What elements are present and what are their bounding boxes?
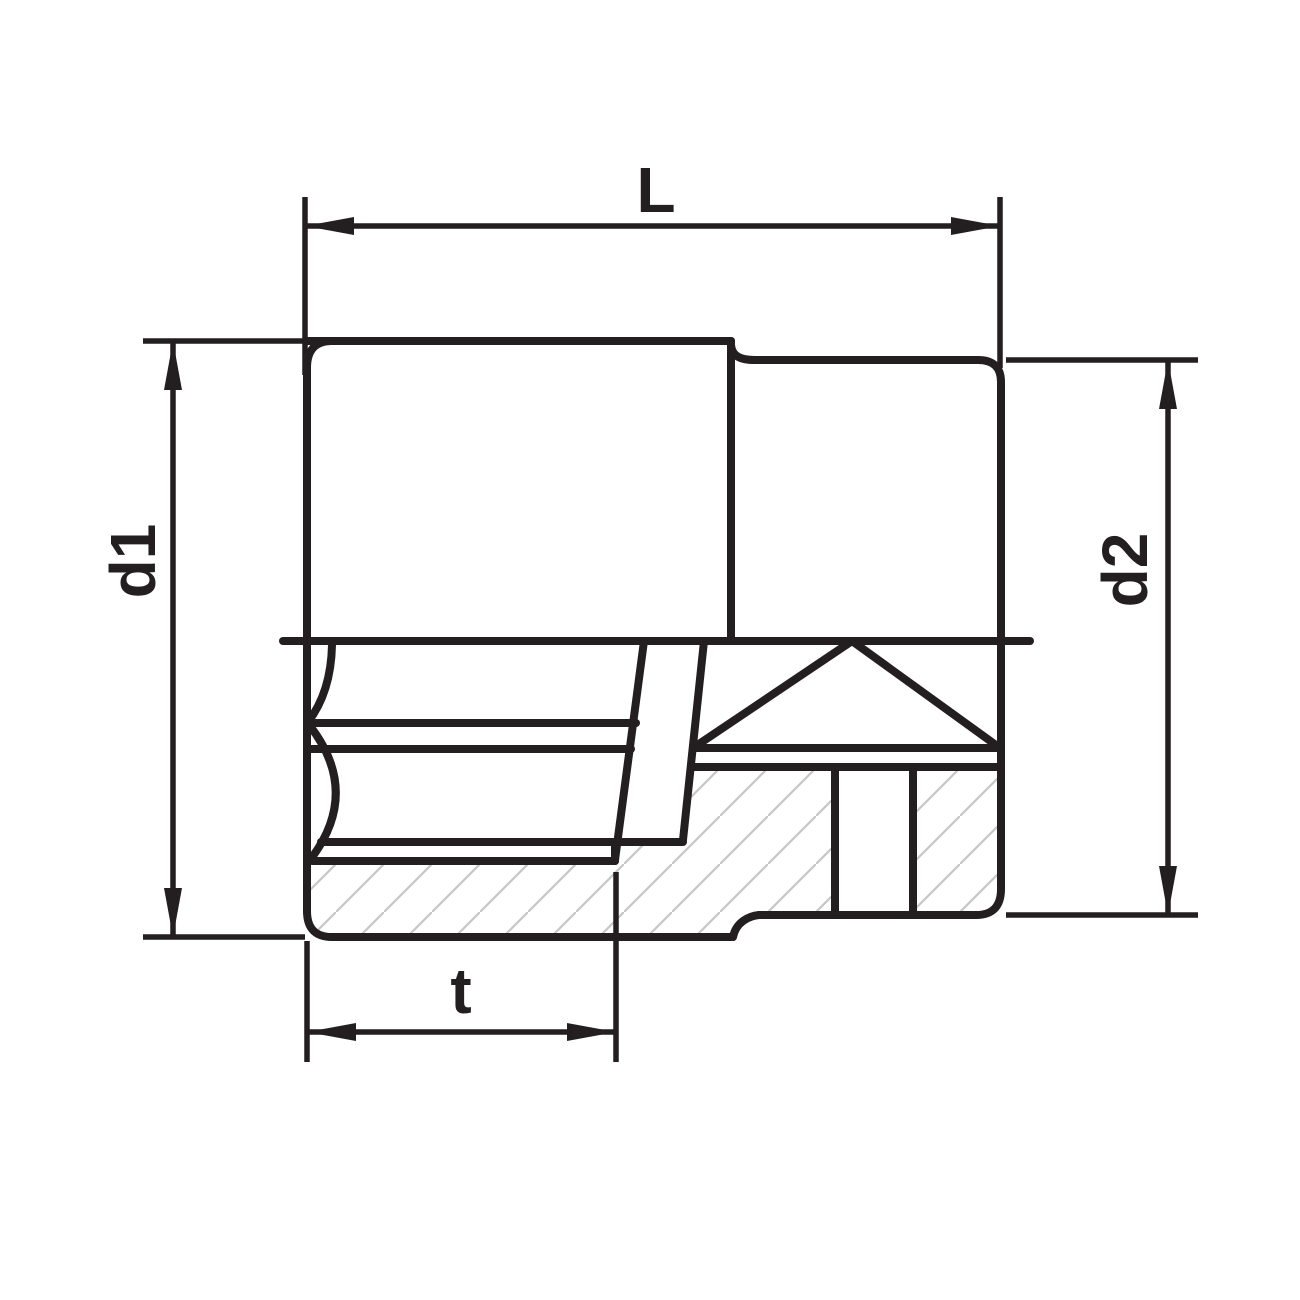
L-dimension-label: L: [636, 154, 675, 226]
drive-cone-left-slope: [693, 641, 852, 748]
d2-arrowhead-bottom: [1159, 866, 1177, 915]
front-top-corner-radius: [307, 341, 332, 368]
L-arrowhead-left: [305, 217, 354, 235]
t-arrowhead-left: [307, 1023, 356, 1041]
L-arrowhead-right: [951, 217, 1000, 235]
shoulder-top-fillet: [731, 345, 755, 360]
d1-arrowhead-top: [164, 341, 182, 390]
t-arrowhead-right: [567, 1023, 616, 1041]
d2-dimension-label: d2: [1089, 533, 1161, 608]
drawing-canvas: L d1 d2 t: [0, 0, 1300, 1300]
d1-dimension-label: d1: [97, 524, 169, 599]
d1-arrowhead-bottom: [164, 888, 182, 937]
drive-cone-right-slope: [852, 641, 1000, 748]
dimension-d2: d2: [1006, 360, 1198, 915]
d2-arrowhead-top: [1159, 360, 1177, 409]
t-dimension-label: t: [450, 955, 471, 1027]
hex-chamfer-arc-upper: [308, 645, 332, 722]
socket-technical-drawing: L d1 d2 t: [0, 0, 1300, 1300]
dimension-d1: d1: [97, 341, 305, 937]
